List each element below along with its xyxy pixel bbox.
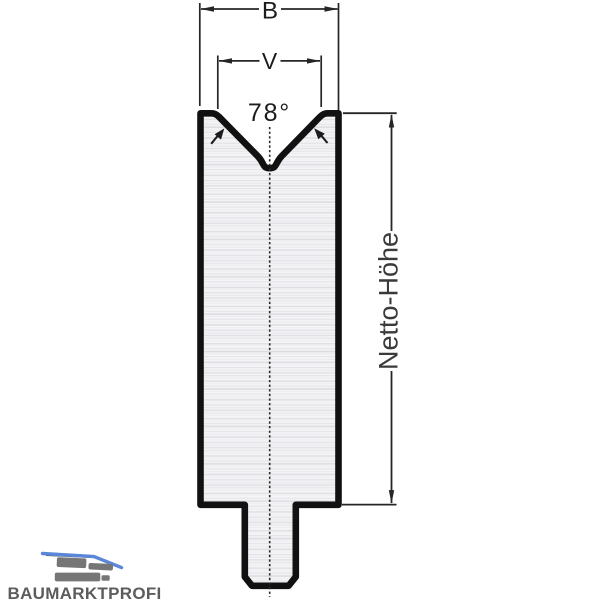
svg-text:78°: 78° <box>248 99 291 127</box>
svg-text:V: V <box>262 48 278 74</box>
svg-text:Netto-Höhe: Netto-Höhe <box>374 232 404 370</box>
svg-text:BAUMARKTPROFI: BAUMARKTPROFI <box>8 584 162 600</box>
svg-text:B: B <box>262 0 278 25</box>
